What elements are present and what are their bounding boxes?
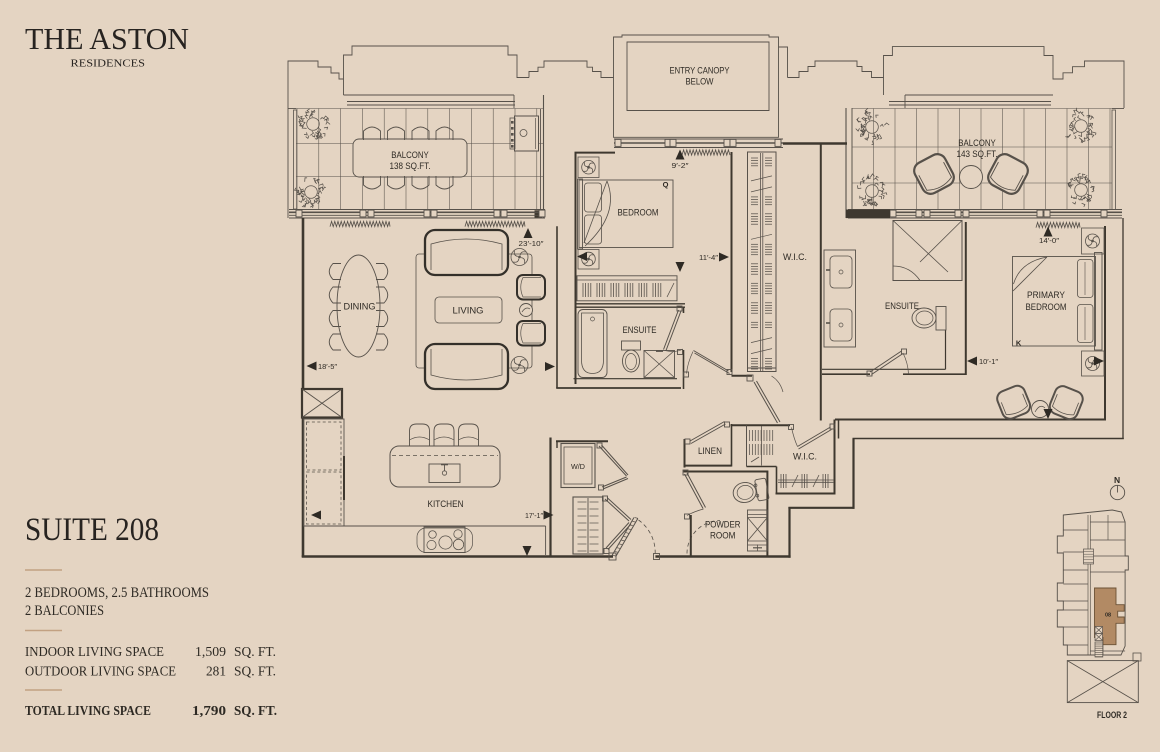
- svg-text:BEDROOM: BEDROOM: [1026, 302, 1067, 313]
- svg-text:W/D: W/D: [571, 462, 586, 471]
- svg-text:TOTAL LIVING SPACE: TOTAL LIVING SPACE: [25, 704, 151, 719]
- svg-text:9′-2″: 9′-2″: [672, 161, 689, 170]
- svg-text:BALCONY: BALCONY: [958, 138, 996, 149]
- svg-text:BELOW: BELOW: [686, 77, 714, 88]
- svg-text:2 BALCONIES: 2 BALCONIES: [25, 603, 104, 619]
- svg-text:10′-1″: 10′-1″: [979, 357, 998, 366]
- svg-text:138 SQ.FT.: 138 SQ.FT.: [390, 161, 431, 172]
- svg-text:2 BEDROOMS, 2.5 BATHROOMS: 2 BEDROOMS, 2.5 BATHROOMS: [25, 585, 209, 601]
- svg-text:SQ. FT.: SQ. FT.: [234, 665, 276, 680]
- svg-text:17′-1″: 17′-1″: [525, 511, 543, 520]
- svg-text:SQ. FT.: SQ. FT.: [234, 645, 276, 660]
- svg-text:INDOOR LIVING SPACE: INDOOR LIVING SPACE: [25, 645, 164, 660]
- svg-text:ENSUITE: ENSUITE: [885, 301, 919, 312]
- svg-text:1,790: 1,790: [192, 704, 226, 719]
- svg-text:18′-5″: 18′-5″: [318, 362, 337, 371]
- svg-text:23′-10″: 23′-10″: [519, 239, 544, 248]
- svg-text:W.I.C.: W.I.C.: [793, 452, 817, 463]
- svg-text:ENTRY CANOPY: ENTRY CANOPY: [670, 65, 731, 76]
- svg-text:BEDROOM: BEDROOM: [618, 208, 659, 219]
- svg-text:OUTDOOR LIVING SPACE: OUTDOOR LIVING SPACE: [25, 665, 176, 680]
- svg-text:W.I.C.: W.I.C.: [783, 252, 807, 263]
- svg-text:143 SQ.FT.: 143 SQ.FT.: [957, 149, 998, 160]
- svg-text:ROOM: ROOM: [710, 531, 736, 542]
- svg-text:PRIMARY: PRIMARY: [1027, 290, 1066, 301]
- svg-text:Q: Q: [663, 180, 670, 189]
- svg-text:1,509: 1,509: [195, 645, 226, 660]
- svg-text:POWDER: POWDER: [705, 520, 741, 531]
- svg-text:SUITE 208: SUITE 208: [25, 512, 159, 548]
- svg-text:ENSUITE: ENSUITE: [623, 325, 657, 336]
- svg-text:BALCONY: BALCONY: [391, 150, 429, 161]
- svg-text:KITCHEN: KITCHEN: [428, 499, 464, 510]
- svg-text:THE ASTON: THE ASTON: [25, 21, 189, 56]
- svg-text:N: N: [1114, 475, 1121, 485]
- svg-text:FLOOR 2: FLOOR 2: [1097, 710, 1127, 721]
- svg-text:14′-0″: 14′-0″: [1039, 236, 1059, 245]
- svg-text:SQ. FT.: SQ. FT.: [234, 704, 277, 719]
- svg-text:DINING: DINING: [344, 302, 376, 313]
- svg-text:LIVING: LIVING: [453, 306, 484, 317]
- svg-text:LINEN: LINEN: [698, 446, 722, 457]
- svg-text:K: K: [1016, 339, 1022, 348]
- svg-text:281: 281: [206, 665, 226, 680]
- svg-text:08: 08: [1105, 613, 1111, 619]
- svg-text:RESIDENCES: RESIDENCES: [71, 58, 146, 69]
- svg-text:11′-4″: 11′-4″: [699, 253, 718, 262]
